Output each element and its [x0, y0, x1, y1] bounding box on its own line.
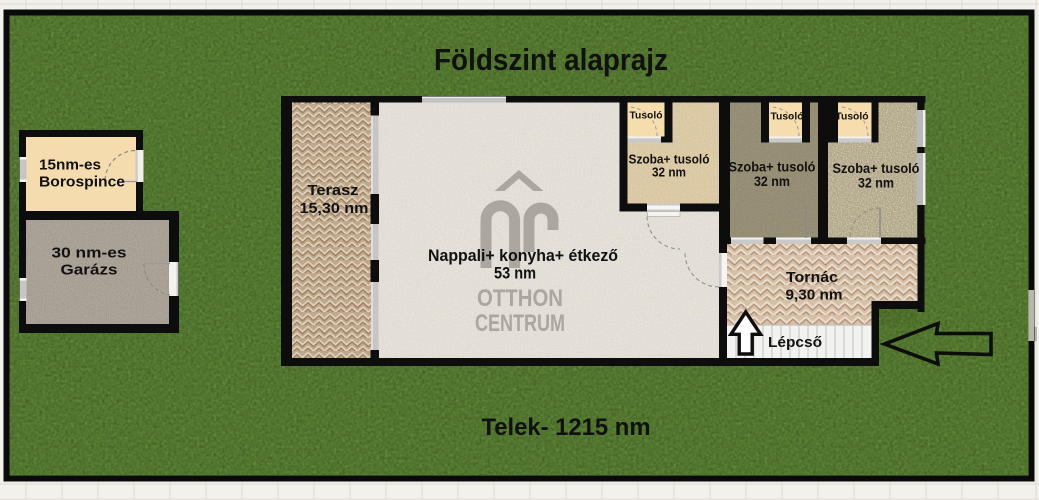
svg-text:Tusoló: Tusoló — [630, 110, 663, 122]
svg-text:Szoba+ tusoló: Szoba+ tusoló — [629, 153, 710, 167]
svg-text:CENTRUM: CENTRUM — [475, 310, 565, 337]
svg-text:30 nm-es: 30 nm-es — [52, 246, 127, 262]
svg-text:Földszint alaprajz: Földszint alaprajz — [434, 42, 668, 77]
svg-text:32 nm: 32 nm — [858, 176, 894, 191]
svg-text:Lépcső: Lépcső — [768, 334, 822, 351]
svg-text:Telek- 1215 nm: Telek- 1215 nm — [482, 414, 651, 441]
svg-text:Tusoló: Tusoló — [836, 111, 869, 123]
svg-text:OTTHON: OTTHON — [477, 285, 563, 312]
svg-text:Tusoló: Tusoló — [771, 111, 804, 123]
svg-text:Nappali+ konyha+ étkező: Nappali+ konyha+ étkező — [428, 247, 618, 265]
svg-text:9,30 nm: 9,30 nm — [786, 287, 843, 304]
svg-text:32 nm: 32 nm — [652, 166, 686, 180]
svg-text:Garázs: Garázs — [61, 263, 118, 279]
svg-text:53 nm: 53 nm — [494, 265, 536, 283]
svg-text:15nm-es: 15nm-es — [39, 158, 101, 174]
svg-text:15,30 nm: 15,30 nm — [300, 201, 369, 217]
svg-text:Szoba+ tusoló: Szoba+ tusoló — [729, 160, 816, 175]
svg-text:Szoba+ tusoló: Szoba+ tusoló — [833, 161, 920, 176]
svg-text:32 nm: 32 nm — [754, 174, 790, 189]
svg-text:Borospince: Borospince — [39, 175, 125, 191]
svg-text:Tornác: Tornác — [786, 269, 838, 286]
svg-text:Terasz: Terasz — [308, 183, 359, 199]
